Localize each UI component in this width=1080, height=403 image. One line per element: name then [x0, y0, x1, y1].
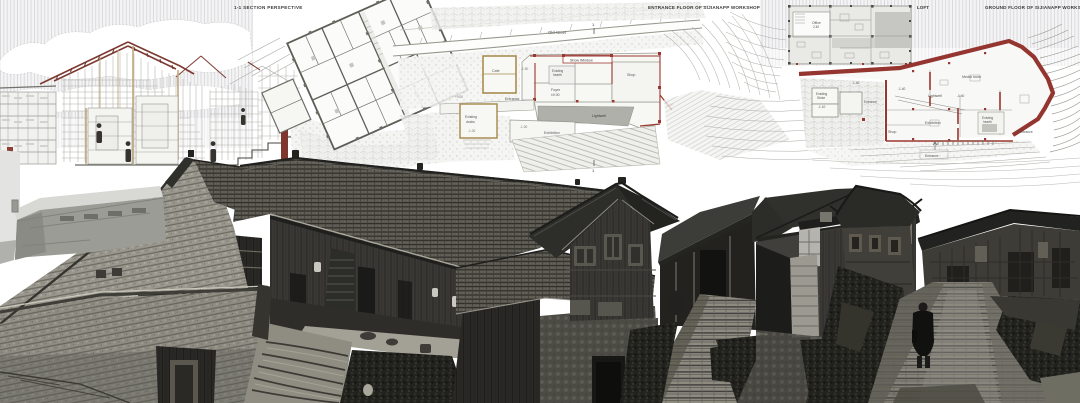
svg-text:1-1 SECTION PERSPECTIVE: 1-1 SECTION PERSPECTIVE	[234, 5, 303, 10]
svg-text:Existing: Existing	[465, 115, 477, 119]
svg-text:Exhibition: Exhibition	[544, 131, 560, 135]
svg-text:±0.00: ±0.00	[551, 93, 560, 97]
svg-text:Shop: Shop	[627, 73, 635, 77]
svg-text:Lightwell: Lightwell	[928, 94, 942, 98]
svg-text:Entrance: Entrance	[864, 100, 877, 104]
svg-text:-1.00: -1.00	[468, 129, 475, 133]
svg-text:-1.40: -1.40	[852, 81, 859, 85]
svg-text:docks: docks	[466, 120, 475, 124]
svg-text:-1.50: -1.50	[521, 67, 528, 71]
svg-text:Old street: Old street	[548, 30, 567, 35]
svg-text:+0.00: +0.00	[455, 95, 463, 99]
svg-text:Exhibition: Exhibition	[925, 121, 941, 125]
svg-text:2.40: 2.40	[813, 25, 819, 29]
svg-text:GROUND FLOOR OF SIJIANAPP WORK: GROUND FLOOR OF SIJIANAPP WORKSHOP	[985, 5, 1080, 10]
svg-text:Foyer: Foyer	[551, 88, 561, 92]
svg-text:-1.00: -1.00	[520, 125, 527, 129]
svg-text:ENTRANCE FLOOR OF SIJIANAPP WO: ENTRANCE FLOOR OF SIJIANAPP WORKSHOP	[648, 5, 760, 10]
svg-text:hearth: hearth	[553, 73, 562, 77]
svg-text:Stoke: Stoke	[817, 96, 825, 100]
svg-text:Shop: Shop	[888, 130, 896, 134]
svg-text:Entrance: Entrance	[505, 97, 519, 101]
svg-text:hearth: hearth	[983, 120, 992, 124]
svg-text:Entrance: Entrance	[925, 154, 939, 158]
svg-text:Y Entrance: Y Entrance	[1016, 130, 1033, 134]
svg-text:-1.10: -1.10	[818, 105, 825, 109]
svg-text:LOFT: LOFT	[917, 5, 929, 10]
svg-text:-1.40: -1.40	[898, 87, 905, 91]
svg-text:Media room: Media room	[962, 75, 981, 79]
svg-text:Lightwell: Lightwell	[592, 114, 606, 118]
svg-text:Show Window: Show Window	[570, 59, 593, 63]
svg-text:Cafe: Cafe	[492, 69, 500, 73]
svg-text:-1.40: -1.40	[957, 94, 964, 98]
